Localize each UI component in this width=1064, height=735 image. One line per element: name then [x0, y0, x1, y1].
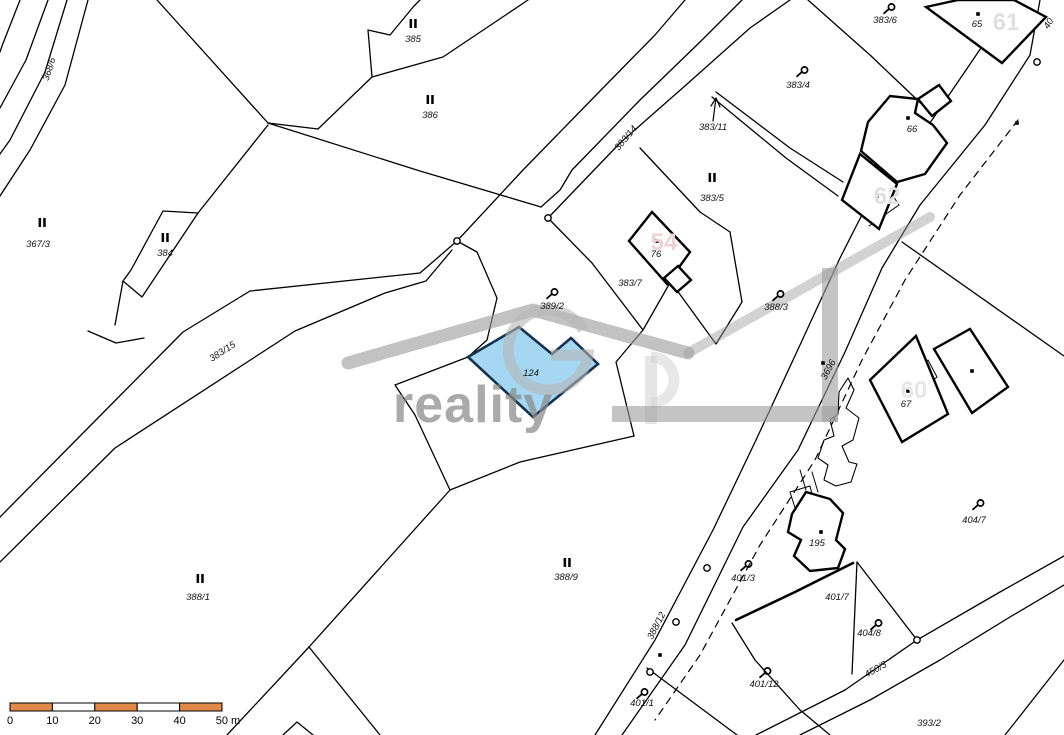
watermark-text: reality: [393, 376, 553, 434]
landuse-symbol: [973, 500, 984, 509]
cadastral-map-canvas: reality 61626054368/6385386367/3384383/1…: [0, 0, 1064, 735]
watermark-house-corner: [612, 406, 838, 422]
parcel-boundary-line: [457, 0, 685, 241]
landuse-symbol-bars: [410, 19, 417, 28]
parcel-label: 386: [422, 110, 439, 121]
parcel-boundary-line: [712, 97, 838, 196]
parcel-label: 67: [901, 399, 912, 410]
parcel-boundary-line: [756, 556, 1064, 735]
parcel-boundary-line: [852, 562, 857, 674]
parcel-boundary-line: [198, 125, 268, 213]
building-point-dot: [976, 12, 980, 16]
parcel-boundary-line: [457, 241, 497, 357]
parcel-label: 76: [651, 249, 662, 260]
boundary-point-circle: [673, 619, 679, 625]
landuse-symbol: [547, 289, 558, 298]
scale-bar-segment: [180, 703, 222, 711]
parcel-label: 404/7: [962, 515, 986, 526]
parcel-label: 383/15: [207, 339, 238, 364]
parcel-boundary-line: [0, 0, 88, 196]
parcel-label: 393/2: [917, 718, 941, 729]
map-scale-bar: 01020304050 m: [7, 703, 240, 727]
parcel-label: 383/7: [618, 278, 642, 289]
landuse-symbol-bars: [197, 574, 204, 583]
parcel-label: 383/5: [700, 193, 724, 204]
parcel-boundary-line: [115, 281, 123, 325]
parcel-boundary-line: [157, 0, 268, 123]
parcel-boundary-line: [732, 623, 830, 735]
boundary-point-circle: [647, 669, 653, 675]
parcel-label: 383/11: [699, 122, 727, 133]
parcel-boundary-line: [450, 436, 634, 490]
building-point-dot: [906, 116, 910, 120]
parcel-label: 401/7: [825, 592, 849, 603]
building-point-dot: [821, 361, 825, 365]
parcel-label: 388/1: [186, 592, 210, 603]
parcel-boundary-line: [309, 647, 380, 735]
parcel-label: 383/6: [873, 15, 897, 26]
parcel-label: 401/1: [630, 698, 654, 709]
landuse-symbol-bars: [427, 95, 434, 104]
parcel-boundary-line: [318, 0, 420, 129]
boundary-point-circle: [914, 637, 920, 643]
boundary-point-circle: [545, 215, 551, 221]
building-point-dot: [658, 653, 662, 657]
parcel-boundary-line: [0, 0, 20, 52]
parcel-label: 404/8: [857, 628, 881, 639]
watermark-roof-ridge: [688, 217, 930, 353]
scale-bar-segment: [52, 703, 94, 711]
scale-bar-label: 20: [89, 715, 101, 727]
parcel-label: 383/14: [613, 124, 640, 153]
boundary-point-circle: [1034, 59, 1040, 65]
landuse-symbol: [637, 689, 648, 698]
boundary-point-circle: [704, 565, 710, 571]
parcel-label: 195: [809, 538, 826, 549]
parcel-label: 385: [405, 34, 422, 45]
scale-bar-label: 40: [173, 715, 185, 727]
parcel-boundary-line: [283, 722, 313, 735]
watermark-house-corner: [822, 268, 838, 422]
house-number-faint: 62: [874, 183, 901, 210]
building-outline: [926, 0, 1046, 63]
parcel-boundary-line: [902, 242, 1064, 356]
parcel-label: 124: [523, 368, 539, 379]
parcel-boundary-line: [88, 331, 144, 343]
scale-bar-label: 50 m: [216, 715, 240, 727]
landuse-symbol: [884, 4, 895, 13]
landuse-symbol: [797, 67, 808, 76]
parcel-boundary-line: [372, 0, 528, 77]
parcel-boundary-line: [800, 470, 806, 490]
parcel-label: 401/3: [731, 573, 755, 584]
parcel-label: 367/3: [26, 239, 50, 250]
scale-bar-segment: [95, 703, 137, 711]
parcel-boundary-line: [647, 668, 737, 735]
building-point-dot: [819, 530, 823, 534]
scale-bar-segment: [10, 703, 52, 711]
parcel-label: 388/3: [764, 302, 788, 313]
parcel-label: 383/4: [786, 80, 810, 91]
landuse-symbol-bars: [162, 233, 169, 242]
parcel-boundary-line: [1005, 660, 1064, 735]
house-number-faint: 61: [993, 9, 1020, 36]
parcel-boundary-line: [808, 0, 930, 112]
boundary-point-circle: [454, 238, 460, 244]
building-outline: [788, 492, 845, 571]
parcel-boundary-line: [541, 0, 742, 207]
landuse-symbol-bars: [564, 558, 571, 567]
parcel-boundary-line: [548, 0, 790, 218]
parcel-boundary-line: [800, 585, 1064, 735]
parcel-boundary-line: [0, 0, 67, 154]
parcel-boundary-line: [716, 92, 843, 182]
parcel-boundary-line: [0, 0, 48, 108]
parcel-label: 66: [907, 124, 918, 135]
parcel-boundary-line: [812, 472, 818, 492]
parcel-label: 65: [972, 19, 983, 30]
parcel-label: 368/6: [41, 56, 59, 83]
scale-bar-label: 10: [46, 715, 58, 727]
parcel-label: 389/2: [540, 301, 564, 312]
scale-bar-label: 30: [131, 715, 143, 727]
cadastral-map-view: reality 61626054368/6385386367/3384383/1…: [0, 0, 1064, 735]
parcel-boundary-line: [0, 241, 457, 517]
landuse-symbol-bars: [709, 173, 716, 182]
parcel-boundary-line: [0, 250, 452, 562]
building-point-dot: [1015, 121, 1019, 125]
building-outline: [918, 85, 951, 116]
parcel-label: 388/9: [554, 572, 578, 583]
landuse-symbol-bars: [39, 218, 46, 227]
parcel-label: 384: [157, 248, 173, 259]
parcel-label: 401/12: [749, 679, 779, 690]
building-point-dot: [970, 369, 974, 373]
scale-bar-segment: [137, 703, 179, 711]
scale-bar-label: 0: [7, 715, 13, 727]
parcel-label: 388/12: [645, 610, 668, 642]
